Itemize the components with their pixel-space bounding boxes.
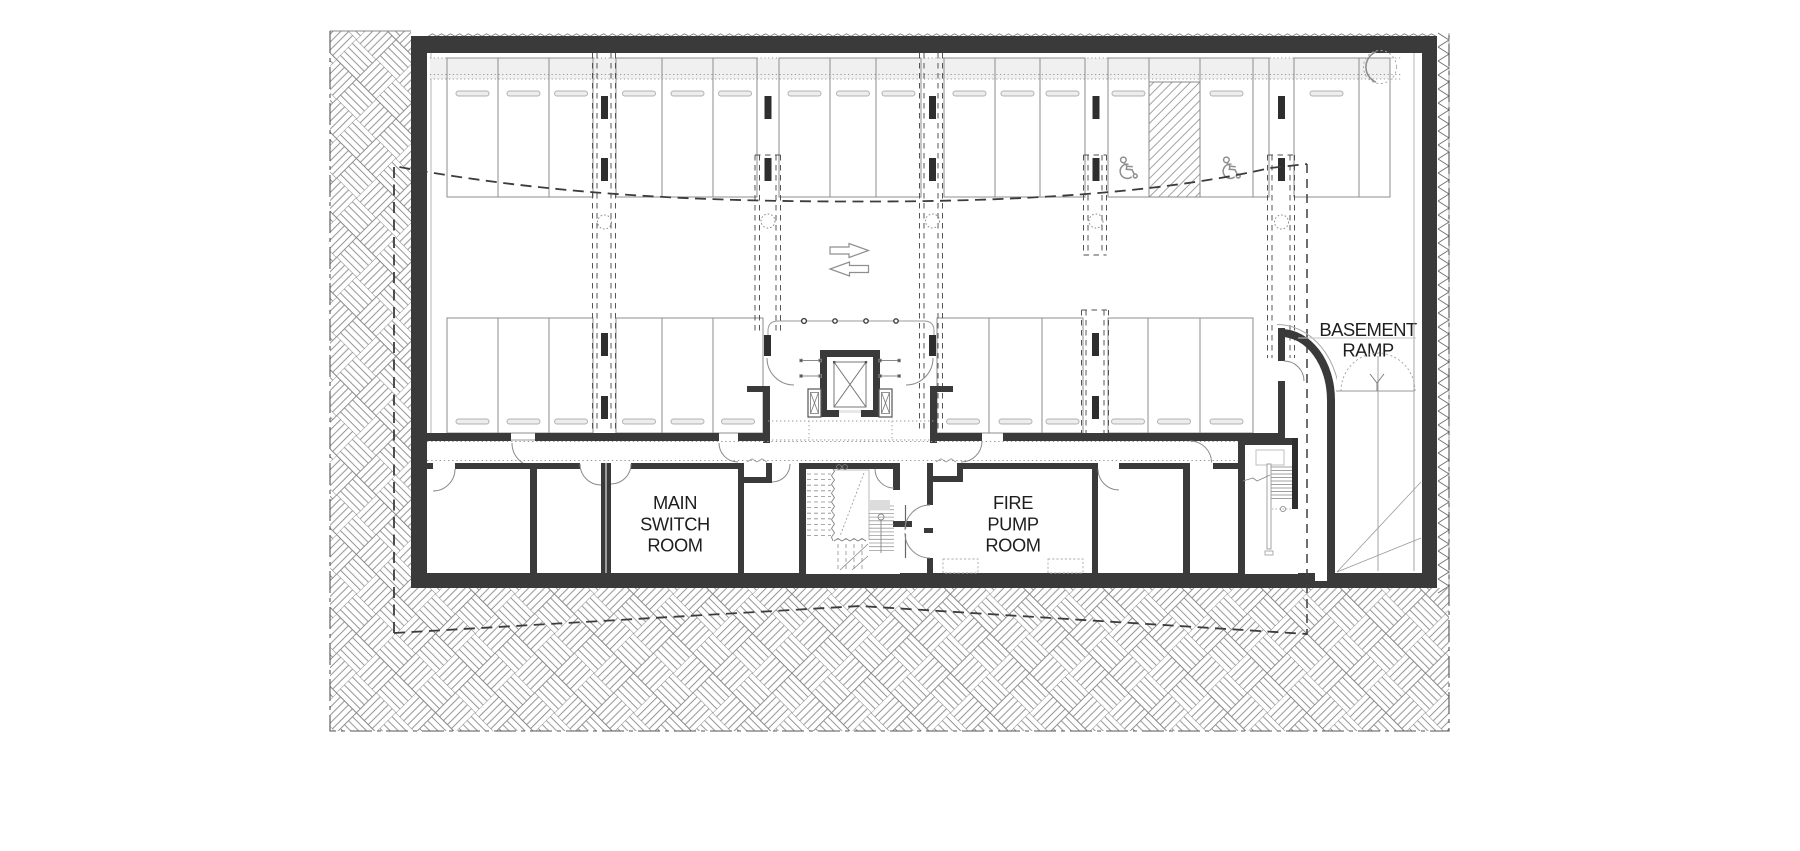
svg-text:FIREPUMPROOM: FIREPUMPROOM <box>985 492 1040 556</box>
